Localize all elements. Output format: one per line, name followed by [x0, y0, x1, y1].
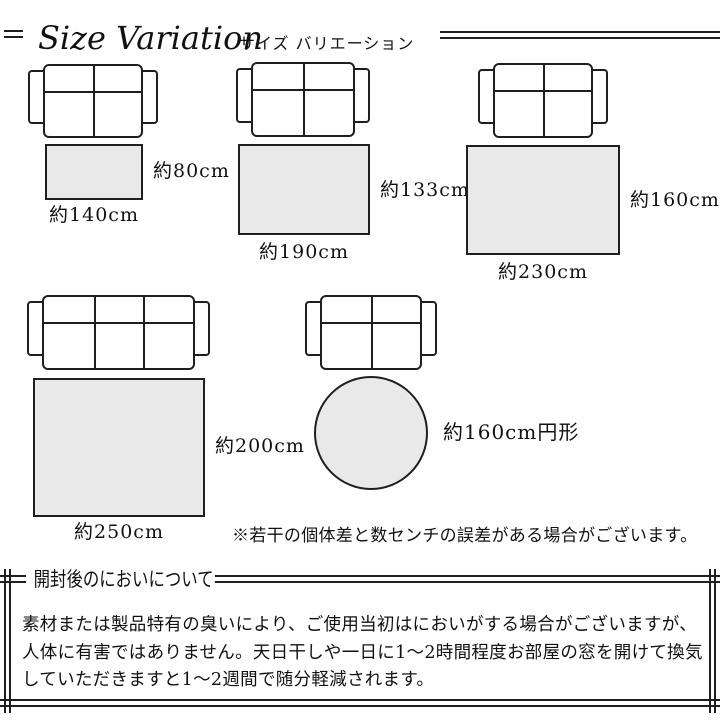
- width-label: 約230cm: [466, 263, 620, 282]
- sofa-3seat-icon: [27, 295, 210, 370]
- odor-body-line: 素材または製品特有の臭いにより、ご使用当初はにおいがする場合がございますが、: [22, 611, 697, 636]
- rug-rect-190x133: [238, 144, 370, 235]
- width-label: 約190cm: [238, 243, 370, 262]
- sofa-body: [493, 63, 593, 138]
- odor-section-heading: 開封後のにおいについて: [32, 569, 215, 589]
- sofa-body: [42, 295, 195, 370]
- diameter-label: 約160cm円形: [443, 422, 579, 442]
- depth-label: 約133cm: [380, 181, 470, 200]
- sofa-2seat-icon: [305, 295, 437, 370]
- depth-label: 約160cm: [630, 191, 720, 210]
- sofa-body: [43, 64, 143, 138]
- odor-body-line: 人体に有害ではありません。天日干しや一日に1〜2時間程度お部屋の窓を開けて換気: [22, 639, 703, 664]
- odor-frame-bottom-rule: [0, 699, 720, 707]
- sofa-body: [320, 295, 422, 370]
- odor-heading-right-rule: [196, 575, 720, 583]
- tolerance-note: ※若干の個体差と数センチの誤差がある場合がございます。: [232, 521, 697, 546]
- odor-frame-left-rule: [4, 569, 11, 713]
- rug-rect-230x160: [466, 145, 620, 255]
- sofa-2seat-icon: [236, 62, 370, 137]
- sofa-2seat-icon: [478, 63, 608, 138]
- odor-body-line: していただきますと1〜2週間で随分軽減されます。: [22, 666, 434, 691]
- rug-rect-250x200: [33, 378, 205, 517]
- rug-circle-160: [314, 376, 428, 490]
- sofa-body: [251, 62, 355, 137]
- page-title: Size Variation: [38, 22, 263, 56]
- header-right-rule: [440, 31, 720, 39]
- width-label: 約250cm: [33, 523, 205, 542]
- header-left-rule: [4, 30, 23, 38]
- sofa-2seat-icon: [28, 64, 158, 138]
- rug-rect-140x80: [45, 144, 143, 200]
- width-label: 約140cm: [45, 206, 143, 225]
- depth-label: 約80cm: [153, 162, 230, 181]
- odor-heading-left-rule: [0, 575, 26, 583]
- size-variation-page: Size Variation サイズ バリエーション 約80cm 約140cm …: [0, 0, 720, 720]
- depth-label: 約200cm: [215, 437, 305, 456]
- odor-frame-right-rule: [709, 569, 716, 713]
- page-subtitle: サイズ バリエーション: [239, 30, 414, 54]
